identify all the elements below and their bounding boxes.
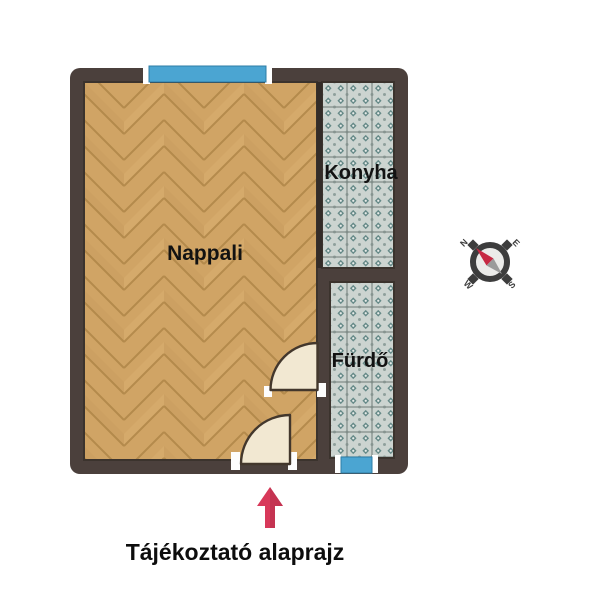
nappali-konyha-divider-wall: [317, 82, 323, 268]
window-top: [143, 65, 272, 84]
caption: Tájékoztató alaprajz: [126, 539, 345, 565]
window-bathroom: [335, 455, 378, 473]
room-label-nappali: Nappali: [167, 242, 243, 265]
floorplan-image: Nappali Konyha Fürdő N E W S Tájékoztató…: [0, 0, 600, 613]
entrance-arrow-icon: [257, 487, 283, 528]
compass-label-e: E: [510, 237, 521, 248]
room-label-furdo: Fürdő: [332, 350, 389, 372]
room-label-konyha: Konyha: [324, 162, 398, 184]
room-nappali: [84, 82, 317, 460]
window-bathroom-right-jamb: [372, 455, 378, 473]
compass-label-n: N: [458, 237, 470, 249]
entrance-door-left-jamb: [231, 452, 240, 470]
floorplan-svg: Nappali Konyha Fürdő N E W S Tájékoztató…: [0, 0, 600, 613]
compass-rose-icon: N E W S: [458, 237, 522, 292]
window-top-glass: [149, 66, 266, 82]
compass-label-s: S: [506, 279, 517, 290]
window-bathroom-glass: [341, 457, 372, 473]
nappali-floor: [84, 82, 317, 460]
window-bathroom-left-jamb: [335, 455, 341, 473]
